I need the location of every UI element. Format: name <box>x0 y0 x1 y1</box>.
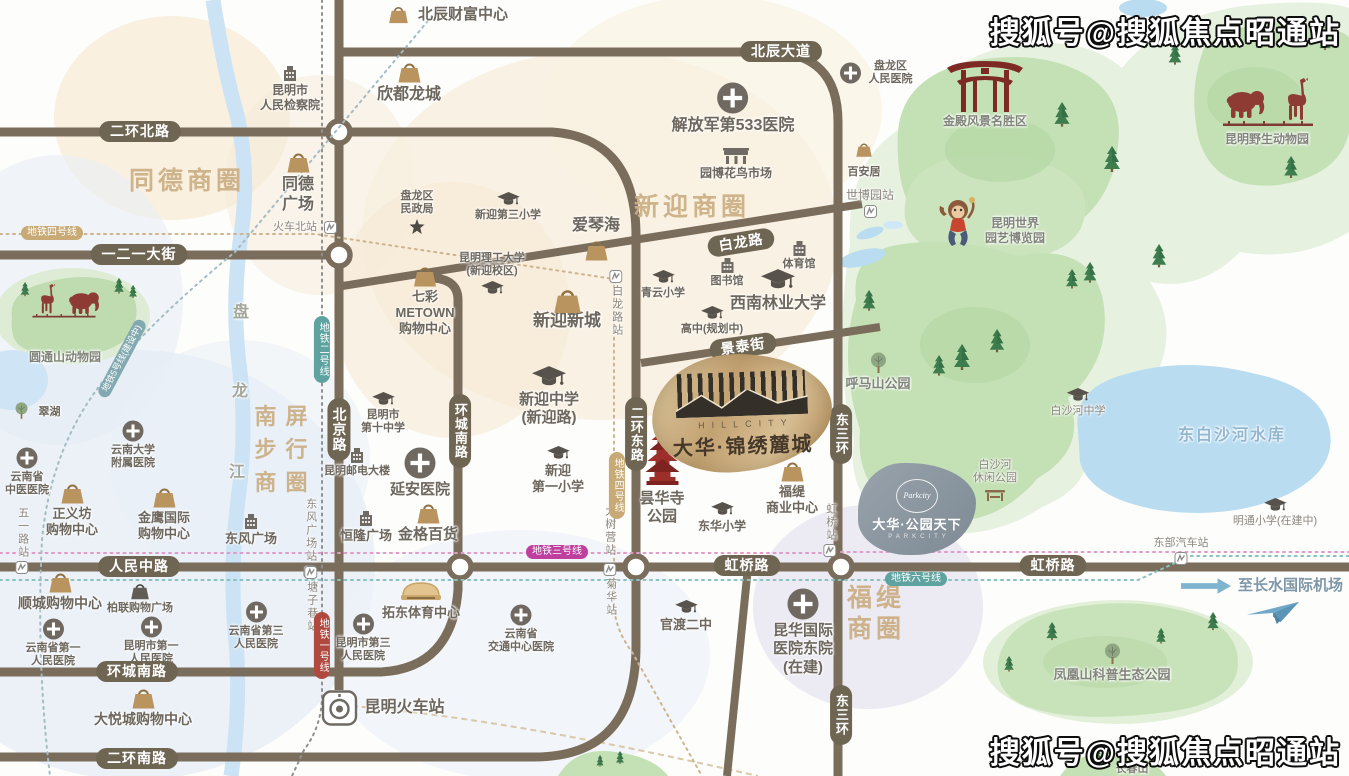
tree <box>930 355 948 381</box>
tree <box>611 751 629 776</box>
panlong-civil-affairs-text: 盘龙区民政局 <box>401 190 434 217</box>
cross-lg-icon <box>404 447 436 479</box>
wildlife-grass <box>1223 121 1313 127</box>
cuihu-lake-text: 翠湖 <box>39 406 61 419</box>
bag-icon <box>855 141 873 157</box>
parkcity-name-cn: 大华·公园天下 <box>872 514 961 533</box>
cross-icon <box>122 420 144 442</box>
road-yieryi-street-text: 一二一大街 <box>102 246 177 263</box>
tree-icon <box>953 344 971 370</box>
panlong-people-hospital: 盘龙区人民医院 <box>840 60 913 87</box>
donghua-primary-text: 东华小学 <box>698 519 746 534</box>
yunnan-tcm-hospital: 云南省中医医院 <box>5 447 49 498</box>
panlongjiang-char-3-text: 江 <box>229 463 245 483</box>
cross-icon <box>42 618 64 640</box>
xinying-no1-primary: 新迎第一小学 <box>532 446 584 495</box>
km-railway-station: 昆明火车站 <box>321 690 444 726</box>
road-bailong-text: 白龙路 <box>717 231 764 255</box>
bench-icon <box>984 488 1006 502</box>
henglong-plaza-text: 恒隆广场 <box>340 528 392 544</box>
tree <box>1053 102 1071 128</box>
building-icon <box>282 66 298 81</box>
dongfengguangchang-station-text: 东风广场站 <box>303 498 316 563</box>
shuncheng-mall: 顺城购物中心 <box>18 570 102 612</box>
huochebei-station: 火车北站 <box>273 221 337 234</box>
bolian-plaza: 柏联购物广场 <box>107 581 173 615</box>
plane-icon <box>1245 598 1301 626</box>
tuodong-sports-center-text: 拓东体育中心 <box>382 605 460 621</box>
cap-lg-icon <box>532 366 566 389</box>
baishahe-middle-school: 白沙河中学 <box>1051 388 1106 418</box>
expo-garden-text: 昆明世界园艺博览园 <box>985 216 1045 245</box>
tree-icon <box>1156 628 1167 644</box>
bag-icon <box>415 501 440 524</box>
guandu-no2-middle: 官渡二中 <box>660 600 712 633</box>
jinge-department-store: 金格百货 <box>398 501 458 544</box>
road-dongsanhuan-1: 东三环 <box>830 404 852 464</box>
zhengyifang-mall-text: 正义坊购物中心 <box>46 506 98 538</box>
map-canvas: 二环北路北辰大道一二一大街人民中路环城南路二环南路虹桥路虹桥路白龙路景泰街北京路… <box>0 0 1349 776</box>
parkcity-name-en: PARKCITY <box>884 534 950 540</box>
tree-icon <box>1207 612 1220 630</box>
cross-icon <box>140 616 162 638</box>
roundtree-icon <box>14 402 30 420</box>
metro-line6-label-text: 地铁六号线 <box>891 573 941 585</box>
sohu-watermark-top: 搜狐号@搜狐焦点昭通站 <box>990 8 1341 52</box>
area-xinying: 新迎商圈 <box>634 192 750 223</box>
xinying-no3-primary-text: 新迎第三小学 <box>475 209 541 222</box>
tree <box>1103 146 1121 172</box>
kunming-univ-sci-tech: 昆明理工大学(新迎校区) <box>459 252 525 296</box>
hongqiao-station: 虹桥站 <box>823 503 836 557</box>
gate-icon <box>947 54 1023 112</box>
metro-line4-label-mid-text: 地铁四号线 <box>611 458 623 513</box>
cross-icon <box>510 604 532 626</box>
xindu-longcheng: 欣都龙城 <box>377 60 441 105</box>
jinying-intl-mall: 金鹰国际购物中心 <box>138 485 190 542</box>
yanan-hospital: 延安医院 <box>390 447 450 499</box>
km-railway-station-text: 昆明火车站 <box>364 698 444 718</box>
shiboyuan-station: 世博园站 <box>846 188 894 218</box>
southwest-forestry-university-text: 西南林业大学 <box>730 294 826 314</box>
road-hongqiao-2: 虹桥路 <box>1020 555 1087 576</box>
southwest-forestry-university: 西南林业大学 <box>730 269 826 314</box>
tree-icon <box>862 290 876 311</box>
bag-icon <box>779 459 804 482</box>
yunnan-univ-hospital-text: 云南大学附属医院 <box>111 444 155 471</box>
baishahe-leisure-park: 白沙河休闲公园 <box>973 459 1017 502</box>
panlongjiang-char-2-text: 龙 <box>232 382 248 402</box>
fudi-commercial-center-text: 福缇商业中心 <box>766 484 818 516</box>
metro-icon <box>305 566 318 579</box>
cuihu-lake: 翠湖 <box>12 402 61 424</box>
road-huancheng-south-v: 环城南路 <box>449 394 471 468</box>
gymnasium: 体育馆 <box>783 241 816 271</box>
cap-icon <box>652 270 675 285</box>
tree <box>988 329 1006 355</box>
bailonglu-station: 白龙路站 <box>609 270 622 337</box>
road-huancheng-south-h: 环城南路 <box>96 661 178 682</box>
metro-line2-label: 地铁二号线 <box>314 316 330 383</box>
jindian-scenic-area: 金殿风景名胜区 <box>943 54 1027 129</box>
grass-icon <box>33 314 96 318</box>
tree <box>1152 628 1170 654</box>
tree-icon <box>20 282 30 296</box>
tree <box>1282 156 1300 182</box>
dayuecheng-mall-text: 大悦城购物中心 <box>94 711 192 728</box>
wildlife-elephant <box>1220 88 1266 120</box>
area-tongde-text: 同德商圈 <box>129 166 245 197</box>
tongde-plaza-text: 同德广场 <box>282 175 314 214</box>
dongbu-bus-station-text: 东部汽车站 <box>1154 537 1209 550</box>
dongbaishahe-reservoir-text: 东白沙河水库 <box>1178 426 1286 446</box>
kunming-no10-middle: 昆明市第十中学 <box>361 392 405 436</box>
road-erhuan-east: 二环东路 <box>625 397 647 471</box>
sohu-watermark-bottom: 搜狐号@搜狐焦点昭通站 <box>990 728 1341 772</box>
road-dongsanhuan-2-text: 东三环 <box>833 694 849 736</box>
building-icon <box>243 514 259 529</box>
road-erhuan-south: 二环南路 <box>96 748 178 769</box>
bag-icon <box>285 150 310 173</box>
aiqinhai-text: 爱琴海 <box>572 216 620 236</box>
kunming-wildlife-park-text: 昆明野生动物园 <box>1225 132 1309 147</box>
to-changshui-airport: 至长水国际机场 <box>1181 577 1343 595</box>
metro-icon <box>324 221 337 234</box>
road-beijing: 北京路 <box>327 398 350 461</box>
metro-icon <box>610 270 623 283</box>
humashan-park-text: 呼马山公园 <box>845 376 910 392</box>
yn-no3-people-hospital: 云南省第三人民医院 <box>229 601 284 652</box>
xinying-no3-primary: 新迎第三小学 <box>475 192 541 222</box>
cross-lg-icon <box>717 82 749 114</box>
road-renmin-middle: 人民中路 <box>98 556 180 577</box>
metro-line1-label-text: 地铁一号线 <box>316 618 328 673</box>
metro-line4-label-west: 地铁四号线 <box>21 226 83 240</box>
juhua-station-text: 菊华站 <box>603 578 616 617</box>
parkcity-monogram-icon: Parkcity <box>896 479 938 513</box>
cap-icon <box>1067 388 1090 403</box>
cross-lg-icon <box>787 588 819 620</box>
qicai-metown-mall-text: 七彩METOWN购物中心 <box>396 289 455 337</box>
road-huancheng-south-h-text: 环城南路 <box>107 663 167 680</box>
area-xinying-text: 新迎商圈 <box>634 192 750 223</box>
zoo-grass <box>19 314 109 320</box>
cross-icon <box>352 613 374 635</box>
area-fudi: 福缇商圈 <box>847 583 905 646</box>
hillcity-name-cn: 大华·锦绣麓城 <box>672 427 814 461</box>
tree-icon <box>989 329 1005 352</box>
fenghuangshan-eco-park-text: 凤凰山科普生态公园 <box>1053 667 1170 683</box>
road-beijing-text: 北京路 <box>330 407 347 452</box>
hongqiao-station-text: 虹桥站 <box>823 503 836 542</box>
yn-no1-people-hospital: 云南省第一人民医院 <box>26 618 81 669</box>
panlongjiang-char-1-text: 盘 <box>233 303 249 323</box>
road-hongqiao-1: 虹桥路 <box>714 555 781 576</box>
bag-dark-icon <box>130 581 150 600</box>
grass-icon <box>1223 121 1313 127</box>
xindu-longcheng-text: 欣都龙城 <box>377 85 441 105</box>
parkcity-mono-text: Parkcity <box>903 491 930 500</box>
qicai-metown-mall: 七彩METOWN购物中心 <box>396 264 455 337</box>
road-huancheng-south-v-text: 环城南路 <box>452 403 468 459</box>
metro-line6-label: 地铁六号线 <box>885 572 947 586</box>
mingtong-primary: 明通小学(在建中) <box>1233 498 1317 528</box>
tree <box>1063 269 1081 295</box>
bag-icon <box>583 238 608 261</box>
bag-icon <box>131 686 156 709</box>
xinying-middle-school: 新迎中学(新迎路) <box>519 366 579 428</box>
metro-line1-label: 地铁一号线 <box>314 612 330 679</box>
pla-533-hospital-text: 解放军第533医院 <box>672 116 795 136</box>
bag-icon <box>412 264 437 287</box>
yn-traffic-center-hospital-text: 云南省交通中心医院 <box>488 628 554 655</box>
aiqinhai: 爱琴海 <box>572 216 620 261</box>
tree-icon <box>1103 146 1121 172</box>
dongbaishahe-reservoir: 东白沙河水库 <box>1178 426 1286 446</box>
planned-high-school: 高中(规划中) <box>681 306 743 336</box>
tree <box>1081 262 1099 288</box>
kunhua-intl-hospital-east-text: 昆华国际医院东院(在建) <box>773 622 833 677</box>
airplane <box>1245 598 1301 626</box>
yuantongshan-zoo-text: 圆通山动物园 <box>29 350 101 365</box>
cross-icon <box>245 601 267 623</box>
kunming-wildlife-park: 昆明野生动物园 <box>1225 132 1309 147</box>
baianju-text: 百安居 <box>848 166 881 179</box>
road-beichen-avenue-text: 北辰大道 <box>751 43 811 60</box>
panlongjiang-char-2: 龙 <box>232 382 248 402</box>
tree-icon <box>1283 156 1298 178</box>
tongde-plaza: 同德广场 <box>282 150 314 214</box>
qingyun-primary: 青云小学 <box>641 270 685 300</box>
tree <box>16 282 34 308</box>
yanan-hospital-text: 延安医院 <box>390 481 450 499</box>
cap-icon <box>710 502 733 517</box>
area-tongde: 同德商圈 <box>129 166 245 197</box>
bolian-plaza-text: 柏联购物广场 <box>107 602 173 615</box>
panlong-people-hospital-text: 盘龙区人民医院 <box>869 60 913 87</box>
cap-icon <box>481 281 504 296</box>
metro-icon <box>604 563 617 576</box>
metro-line2-label-text: 地铁二号线 <box>316 322 328 377</box>
tree <box>1204 612 1222 638</box>
tree-icon <box>596 755 604 767</box>
yuanbo-flower-bird-market: 园博花鸟市场 <box>700 148 772 181</box>
giraffe-icon <box>36 284 57 315</box>
road-erhuan-south-text: 二环南路 <box>107 750 167 767</box>
metro-icon <box>824 544 837 557</box>
wuyilu-station-text: 五一路站 <box>15 507 28 559</box>
baishahe-leisure-park-text: 白沙河休闲公园 <box>973 459 1017 486</box>
cap-lg-icon <box>761 269 795 292</box>
cap-icon <box>546 446 569 461</box>
road-bailong: 白龙路 <box>706 227 775 258</box>
xinying-middle-school-text: 新迎中学(新迎路) <box>519 391 579 428</box>
wildlife-giraffe <box>1280 78 1310 122</box>
yuanbo-flower-bird-market-text: 园博花鸟市场 <box>700 166 772 181</box>
train-icon <box>321 690 357 726</box>
area-fudi-text: 福缇商圈 <box>847 583 905 646</box>
dongfeng-plaza-text: 东风广场 <box>225 531 277 547</box>
tree-icon <box>1004 656 1015 672</box>
beichen-wealth-center-text: 北辰财富中心 <box>418 6 508 24</box>
dongfeng-plaza: 东风广场 <box>225 514 277 547</box>
xinying-no1-primary-text: 新迎第一小学 <box>532 463 584 495</box>
humashan-park: 呼马山公园 <box>845 352 910 392</box>
xinying-xincheng-text: 新迎新城 <box>533 311 601 332</box>
tree <box>591 755 609 776</box>
baishahe-middle-school-text: 白沙河中学 <box>1051 405 1106 418</box>
planned-high-school-text: 高中(规划中) <box>681 323 743 336</box>
tree-icon <box>1065 269 1079 289</box>
tree-icon <box>129 285 138 298</box>
metro-line5-label-text: 地铁5号线(建设中) <box>100 323 144 393</box>
road-hongqiao-2-text: 虹桥路 <box>1031 557 1076 574</box>
metro-icon <box>16 561 29 574</box>
yn-no1-people-hospital-text: 云南省第一人民医院 <box>26 642 81 669</box>
zhengyifang-mall: 正义坊购物中心 <box>46 481 98 538</box>
metro-line4-label-mid: 地铁四号线 <box>609 452 625 519</box>
kunming-univ-sci-tech-text: 昆明理工大学(新迎校区) <box>459 252 525 279</box>
cross-icon <box>16 447 38 469</box>
road-erhuan-north-text: 二环北路 <box>110 123 170 140</box>
guandu-no2-middle-text: 官渡二中 <box>660 617 712 633</box>
renmin-procuratorate-text: 昆明市人民检察院 <box>260 83 320 112</box>
elephant-icon <box>64 290 101 316</box>
giraffe-icon <box>1280 78 1310 122</box>
road-dongsanhuan-2: 东三环 <box>830 685 852 745</box>
bag-icon <box>396 60 421 83</box>
panlongjiang-char-1: 盘 <box>233 303 249 323</box>
shiboyuan-station-text: 世博园站 <box>846 188 894 203</box>
market-icon <box>723 148 749 164</box>
yuantongshan-zoo: 圆通山动物园 <box>29 350 101 365</box>
metro-icon <box>1175 552 1188 565</box>
dayuecheng-mall: 大悦城购物中心 <box>94 686 192 728</box>
cap-icon <box>497 192 520 207</box>
pla-533-hospital: 解放军第533医院 <box>672 82 795 136</box>
yunnan-tcm-hospital-text: 云南省中医医院 <box>5 471 49 498</box>
arrow-icon <box>1181 578 1231 594</box>
tree-icon <box>932 355 946 376</box>
elephant-icon <box>1220 88 1266 120</box>
star-icon <box>410 219 425 234</box>
building-icon <box>358 511 374 526</box>
hillcity-mountains-icon <box>675 387 808 418</box>
road-renmin-middle-text: 人民中路 <box>109 558 169 575</box>
km-no3-people-hospital: 昆明市第三人民医院 <box>336 613 391 664</box>
jinge-department-store-text: 金格百货 <box>398 526 458 544</box>
jinying-intl-mall-text: 金鹰国际购物中心 <box>138 510 190 542</box>
metro-line3-label: 地铁三号线 <box>526 545 588 559</box>
juhua-station: 菊华站 <box>603 563 616 617</box>
tree <box>1150 244 1168 270</box>
yunnan-univ-hospital: 云南大学附属医院 <box>111 420 155 471</box>
building-icon <box>349 448 365 463</box>
bag-icon <box>151 485 176 508</box>
road-yieryi-street: 一二一大街 <box>91 244 188 265</box>
zoo-giraffe <box>31 284 61 328</box>
bag-icon <box>388 4 409 24</box>
road-beichen-avenue: 北辰大道 <box>740 41 822 62</box>
qingyun-primary-text: 青云小学 <box>641 287 685 300</box>
yn-no3-people-hospital-text: 云南省第三人民医院 <box>229 625 284 652</box>
cap-icon <box>1263 498 1286 513</box>
mingtong-primary-text: 明通小学(在建中) <box>1233 515 1317 528</box>
donghua-primary: 东华小学 <box>698 502 746 534</box>
tree <box>1043 622 1061 648</box>
tree <box>124 285 142 311</box>
panlong-civil-affairs: 盘龙区民政局 <box>401 190 434 234</box>
beichen-wealth-center: 北辰财富中心 <box>386 4 508 27</box>
cap-icon <box>372 392 395 407</box>
road-hongqiao-1-text: 虹桥路 <box>725 557 770 574</box>
monkey-king <box>936 196 980 254</box>
metro-icon <box>863 205 876 218</box>
stadium-icon <box>399 578 443 603</box>
road-dongsanhuan-1-text: 东三环 <box>833 413 849 455</box>
tree-icon <box>1053 102 1070 127</box>
huochebei-station-text: 火车北站 <box>273 221 317 234</box>
henglong-plaza: 恒隆广场 <box>340 511 392 544</box>
cap-icon <box>700 306 723 321</box>
tree-icon <box>616 751 625 764</box>
road-erhuan-north: 二环北路 <box>99 121 181 142</box>
cross-icon <box>840 62 862 84</box>
roundtree-icon <box>1102 643 1122 665</box>
bag-icon <box>552 286 582 314</box>
wuyilu-station: 五一路站 <box>15 507 28 574</box>
bag-icon <box>59 481 84 504</box>
to-changshui-airport-text: 至长水国际机场 <box>1238 577 1343 595</box>
area-nanping-text: 南屏步行商圈 <box>245 400 316 499</box>
cap-icon <box>674 600 697 615</box>
km-no1-people-hospital: 昆明市第一人民医院 <box>124 616 179 667</box>
panlongjiang-char-3: 江 <box>229 463 245 483</box>
tuodong-sports-center: 拓东体育中心 <box>382 578 460 621</box>
km-no3-people-hospital-text: 昆明市第三人民医院 <box>336 637 391 664</box>
dongbu-bus-station: 东部汽车站 <box>1154 537 1209 565</box>
tree-icon <box>1083 262 1097 283</box>
tanhuasi-park-text: 昙华寺公园 <box>639 490 684 527</box>
metro-line3-label-text: 地铁三号线 <box>532 546 582 558</box>
building-icon <box>791 241 807 256</box>
tree-icon <box>1046 622 1059 640</box>
fudi-commercial-center: 福缇商业中心 <box>766 459 818 516</box>
baianju: 百安居 <box>848 141 881 179</box>
renmin-procuratorate: 昆明市人民检察院 <box>260 66 320 112</box>
shuncheng-mall-text: 顺城购物中心 <box>18 595 102 612</box>
road-erhuan-east-text: 二环东路 <box>628 406 644 462</box>
xinying-xincheng: 新迎新城 <box>533 286 601 332</box>
area-nanping: 南屏步行商圈 <box>245 400 316 499</box>
yn-traffic-center-hospital: 云南省交通中心医院 <box>488 604 554 655</box>
kunhua-intl-hospital-east: 昆华国际医院东院(在建) <box>773 588 833 677</box>
bailonglu-station-text: 白龙路站 <box>609 285 622 337</box>
kunming-no10-middle-text: 昆明市第十中学 <box>361 409 405 436</box>
tree-icon <box>114 278 125 294</box>
tree <box>1000 656 1018 682</box>
metro-line4-label-west-text: 地铁四号线 <box>27 227 77 239</box>
bag-icon <box>48 570 73 593</box>
expo-garden: 昆明世界园艺博览园 <box>985 216 1045 245</box>
tree <box>860 290 878 316</box>
monkey-icon <box>936 196 980 254</box>
kunming-post-tower-text: 昆明邮电大楼 <box>324 465 390 478</box>
tree <box>953 344 971 370</box>
metro-line5-label: 地铁5号线(建设中) <box>96 317 148 399</box>
roundtree-icon <box>868 352 888 374</box>
jindian-scenic-area-text: 金殿风景名胜区 <box>943 114 1027 129</box>
